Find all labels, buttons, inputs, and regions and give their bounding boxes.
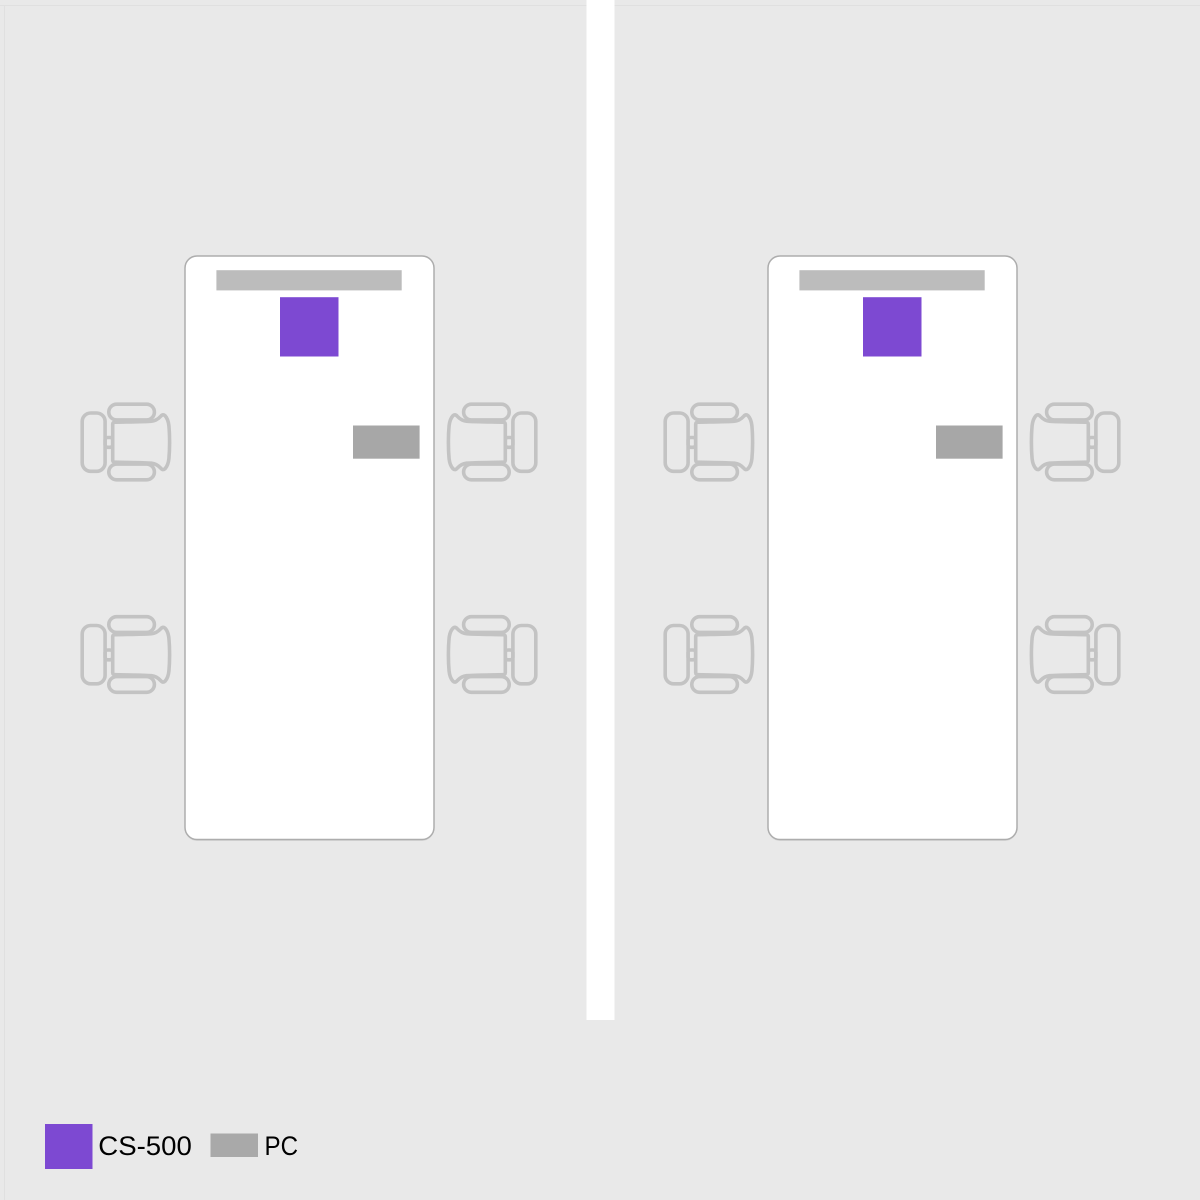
svg-text:CS-500: CS-500 bbox=[98, 1130, 192, 1161]
svg-text:PC: PC bbox=[265, 1130, 299, 1161]
